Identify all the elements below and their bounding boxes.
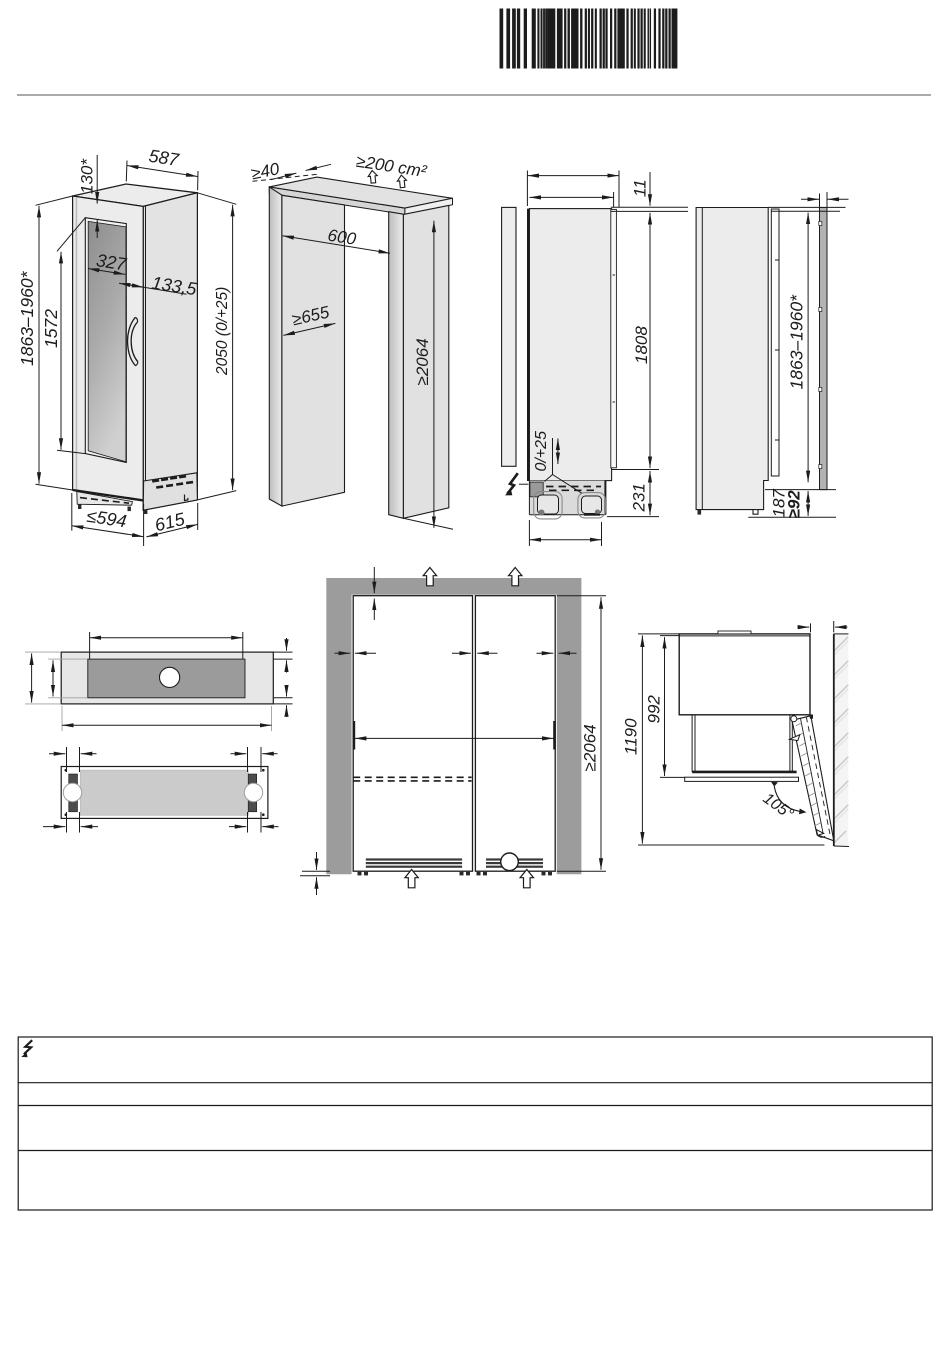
- svg-text:≥2064: ≥2064: [413, 338, 432, 385]
- svg-text:1572: 1572: [41, 309, 61, 348]
- svg-text:≥2064: ≥2064: [581, 724, 600, 771]
- svg-text:1808: 1808: [632, 326, 651, 364]
- svg-text:≥92: ≥92: [785, 490, 804, 519]
- svg-text:130*: 130*: [78, 158, 97, 194]
- svg-text:992: 992: [645, 695, 664, 724]
- svg-text:2050 (0/+25): 2050 (0/+25): [214, 287, 231, 376]
- svg-text:1190: 1190: [622, 718, 641, 755]
- svg-text:231: 231: [630, 483, 649, 512]
- svg-text:1863–1960*: 1863–1960*: [787, 294, 807, 390]
- svg-text:11: 11: [631, 179, 650, 197]
- svg-text:0/+25: 0/+25: [533, 431, 550, 472]
- svg-text:1863–1960*: 1863–1960*: [17, 270, 37, 366]
